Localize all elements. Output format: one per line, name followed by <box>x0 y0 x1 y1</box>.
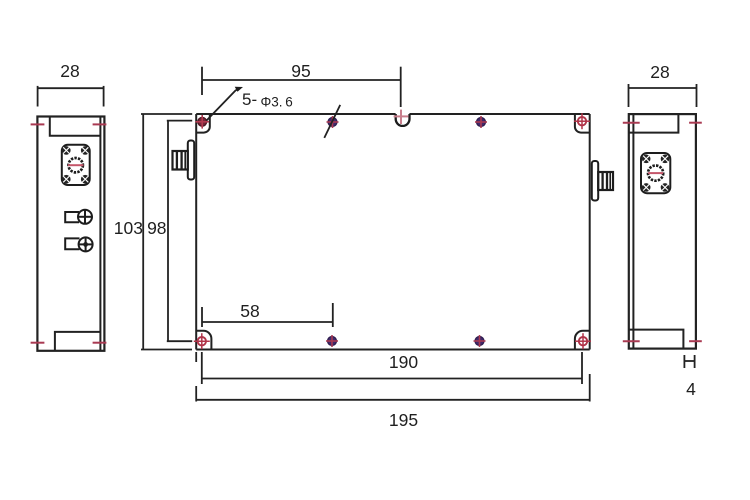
svg-text:28: 28 <box>60 61 79 81</box>
svg-text:95: 95 <box>291 61 310 81</box>
svg-text:5- Φ3. 6: 5- Φ3. 6 <box>242 90 293 110</box>
svg-text:28: 28 <box>650 62 669 82</box>
svg-text:190: 190 <box>389 352 418 372</box>
svg-text:4: 4 <box>686 379 696 399</box>
svg-text:103: 103 <box>114 218 143 238</box>
svg-text:195: 195 <box>389 410 418 430</box>
svg-text:58: 58 <box>240 301 259 321</box>
svg-text:98: 98 <box>147 218 166 238</box>
